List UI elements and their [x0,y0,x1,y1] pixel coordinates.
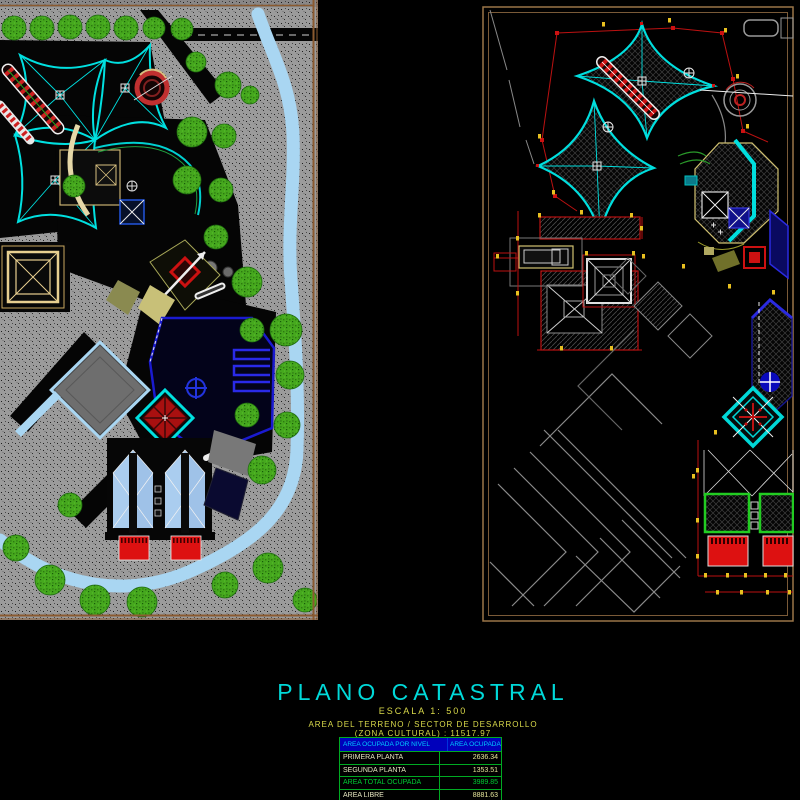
header-col-levels: AREA OCUPADA POR NIVEL [340,738,448,751]
plan-title: PLANO CATASTRAL [213,680,633,704]
cad-drawing-canvas: PLANO CATASTRAL ESCALA 1: 500 AREA DEL T… [0,0,800,800]
table-row: PRIMERA PLANTA 2636.34 [340,752,501,765]
skylight-pyramid [0,242,70,312]
header-col-area: AREA OCUPADA [448,738,501,751]
table-row: SEGUNDA PLANTA 1353.51 [340,765,501,778]
terrain-area-line1: AREA DEL TERRENO / SECTOR DE DESARROLLO [213,720,633,729]
row-label: SEGUNDA PLANTA [340,765,440,777]
right-line-plan-panel [482,6,794,624]
left-site-plan-panel [0,0,318,620]
row-value: 1353.51 [440,765,501,777]
row-value: 8881.63 [440,790,501,800]
row-label: AREA LIBRE [340,790,440,800]
rendered-site-plan [0,0,318,620]
cadastral-line-plan [482,6,794,624]
table-row: AREA LIBRE 8881.63 [340,790,501,800]
row-value: 2636.34 [440,752,501,764]
row-label: PRIMERA PLANTA [340,752,440,764]
plan-scale: ESCALA 1: 500 [213,706,633,716]
row-value: 3989.85 [440,777,501,789]
truck-bay [519,246,573,268]
skylight-pyramid-plan [583,255,635,307]
row-label: AREA TOTAL OCUPADA [340,777,440,789]
area-table: AREA OCUPADA POR NIVEL AREA OCUPADA PRIM… [339,737,502,800]
area-table-header: AREA OCUPADA POR NIVEL AREA OCUPADA [340,738,501,752]
title-block: PLANO CATASTRAL ESCALA 1: 500 AREA DEL T… [213,680,633,738]
table-row-total: AREA TOTAL OCUPADA 3989.85 [340,777,501,790]
